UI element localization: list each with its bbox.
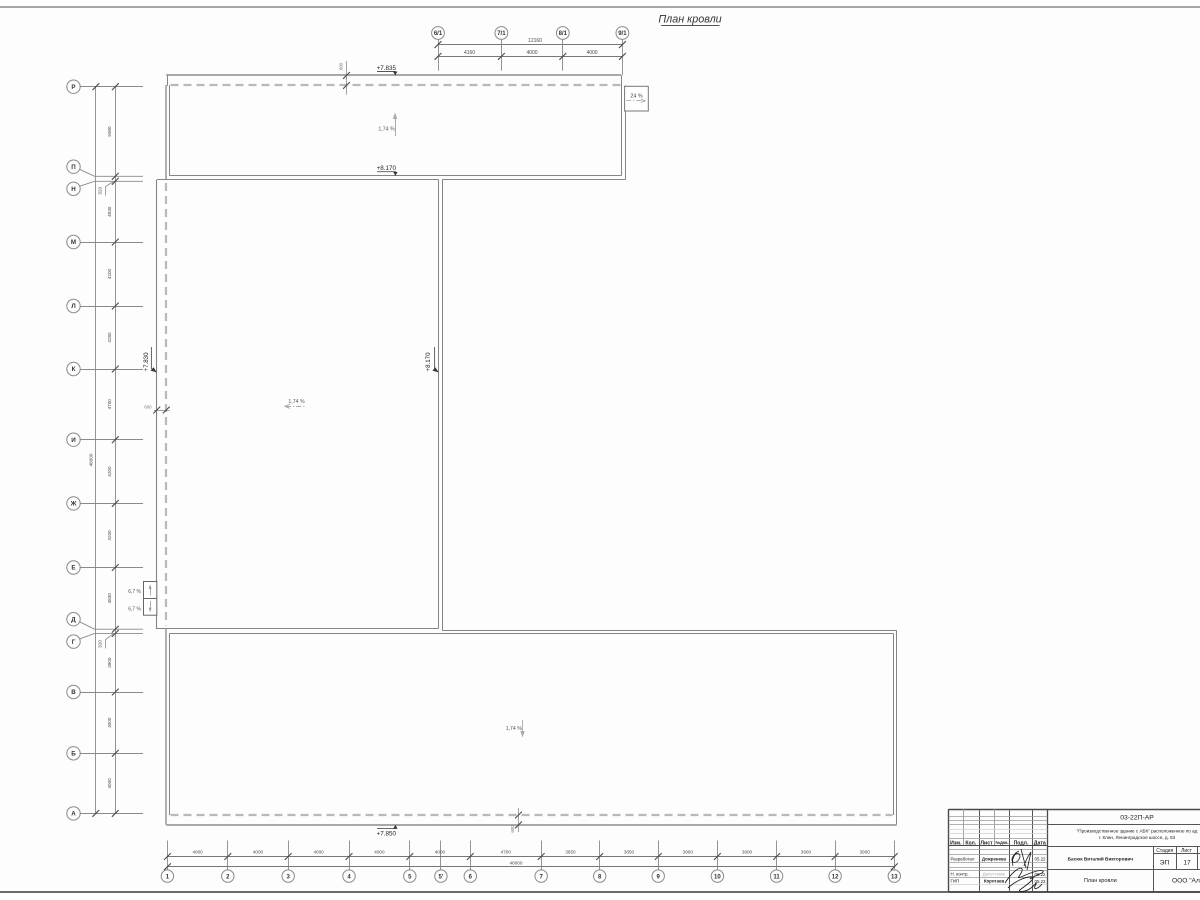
svg-text:7/1: 7/1: [497, 31, 506, 37]
svg-text:1,74 %: 1,74 %: [288, 399, 305, 405]
svg-text:9/1: 9/1: [618, 31, 627, 37]
svg-text:48000: 48000: [89, 453, 94, 466]
svg-text:4700: 4700: [501, 850, 512, 855]
svg-text:13: 13: [891, 874, 898, 880]
svg-text:4000: 4000: [107, 778, 112, 789]
svg-text:Ж: Ж: [70, 501, 77, 508]
svg-text:48000: 48000: [510, 861, 523, 866]
svg-text:Кол.: Кол.: [965, 840, 977, 846]
svg-text:4160: 4160: [464, 50, 475, 56]
svg-text:6/1: 6/1: [434, 31, 443, 37]
svg-text:3850: 3850: [565, 850, 576, 855]
svg-text:К: К: [72, 366, 76, 373]
svg-text:4000: 4000: [107, 717, 112, 728]
svg-text:Басюк Виталий Викторович: Басюк Виталий Викторович: [1068, 856, 1134, 862]
svg-text:Подл.: Подл.: [1014, 840, 1029, 846]
svg-text:Н: Н: [71, 186, 76, 193]
svg-text:600: 600: [144, 405, 152, 410]
svg-text:Коротаев: Коротаев: [984, 879, 1005, 884]
svg-text:3900: 3900: [107, 657, 112, 668]
svg-text:6,7 %: 6,7 %: [128, 589, 141, 595]
svg-text:План кровли: План кровли: [658, 13, 721, 25]
svg-text:05.22: 05.22: [1035, 857, 1047, 862]
svg-text:Н. контр.: Н. контр.: [951, 872, 969, 877]
svg-text:В: В: [71, 689, 76, 696]
svg-text:Стадия: Стадия: [1156, 848, 1173, 854]
svg-text:4700: 4700: [107, 399, 112, 410]
svg-text:№док.: №док.: [995, 840, 1008, 845]
svg-text:8/1: 8/1: [559, 31, 568, 37]
svg-text:17: 17: [1183, 860, 1191, 867]
svg-text:ЭП: ЭП: [1160, 860, 1170, 867]
svg-text:План кровли: План кровли: [1084, 878, 1117, 884]
svg-text:1,74 %: 1,74 %: [378, 127, 395, 133]
svg-text:ООО "Альянс": ООО "Альянс": [1172, 878, 1200, 885]
svg-text:12: 12: [832, 874, 839, 880]
svg-text:6,7 %: 6,7 %: [128, 606, 141, 612]
svg-text:+8.170: +8.170: [377, 165, 397, 172]
svg-text:4000: 4000: [435, 850, 446, 855]
svg-text:+7.830: +7.830: [143, 352, 150, 372]
svg-text:12160: 12160: [528, 38, 542, 44]
svg-text:Дата: Дата: [1034, 840, 1046, 846]
svg-text:Е: Е: [71, 565, 75, 572]
svg-text:05.22: 05.22: [1035, 872, 1047, 877]
svg-text:Дожренева: Дожренева: [982, 856, 1007, 861]
svg-text:4000: 4000: [253, 850, 264, 855]
svg-text:Лист: Лист: [1181, 848, 1193, 854]
svg-text:Г: Г: [72, 639, 76, 646]
svg-text:600: 600: [338, 62, 343, 70]
svg-text:3900: 3900: [801, 850, 812, 855]
svg-text:11: 11: [773, 874, 780, 880]
svg-text:ГИП: ГИП: [951, 879, 960, 884]
svg-text:5': 5': [439, 874, 444, 880]
svg-text:4000: 4000: [526, 50, 537, 56]
svg-text:1,74 %: 1,74 %: [506, 726, 523, 732]
svg-text:Л: Л: [71, 303, 75, 310]
svg-text:П: П: [71, 164, 76, 171]
svg-text:320: 320: [97, 187, 102, 195]
svg-text:4200: 4200: [107, 530, 112, 541]
svg-text:Д: Д: [71, 616, 76, 623]
svg-text:И: И: [71, 437, 76, 444]
svg-text:4000: 4000: [374, 850, 385, 855]
svg-text:320: 320: [97, 640, 102, 648]
svg-text:24 %: 24 %: [630, 93, 642, 99]
svg-text:4000: 4000: [586, 50, 597, 56]
svg-text:3900: 3900: [683, 850, 694, 855]
svg-text:Изм.: Изм.: [950, 840, 962, 846]
svg-text:+7.835: +7.835: [377, 65, 397, 72]
svg-text:"Производственное здание с АБК: "Производственное здание с АБК" располож…: [1077, 828, 1198, 833]
svg-text:4200: 4200: [107, 466, 112, 477]
svg-text:+7.850: +7.850: [377, 830, 397, 837]
svg-text:А: А: [71, 811, 76, 818]
svg-text:3850: 3850: [624, 850, 635, 855]
svg-text:3900: 3900: [742, 850, 753, 855]
svg-text:4000: 4000: [192, 850, 203, 855]
svg-text:М: М: [71, 239, 76, 246]
svg-text:4200: 4200: [107, 268, 112, 279]
svg-text:Разработал: Разработал: [951, 856, 975, 861]
svg-text:Дисеттакке: Дисеттакке: [983, 872, 1006, 877]
svg-text:Р: Р: [71, 84, 75, 91]
svg-text:Лист: Лист: [980, 840, 993, 846]
svg-text:Б: Б: [71, 751, 76, 758]
svg-text:+8.170: +8.170: [425, 352, 432, 372]
svg-text:4000: 4000: [313, 850, 324, 855]
svg-text:г. Клин, Ленинградское шоссе,: г. Клин, Ленинградское шоссе, д. 53: [1099, 835, 1176, 840]
svg-text:600: 600: [510, 825, 515, 833]
svg-text:5900: 5900: [107, 126, 112, 137]
svg-text:4830: 4830: [107, 593, 112, 604]
svg-text:4280: 4280: [107, 332, 112, 343]
svg-text:10: 10: [714, 874, 721, 880]
svg-text:03-22П-АР: 03-22П-АР: [1120, 814, 1154, 821]
svg-text:3900: 3900: [860, 850, 871, 855]
svg-text:4830: 4830: [107, 206, 112, 217]
